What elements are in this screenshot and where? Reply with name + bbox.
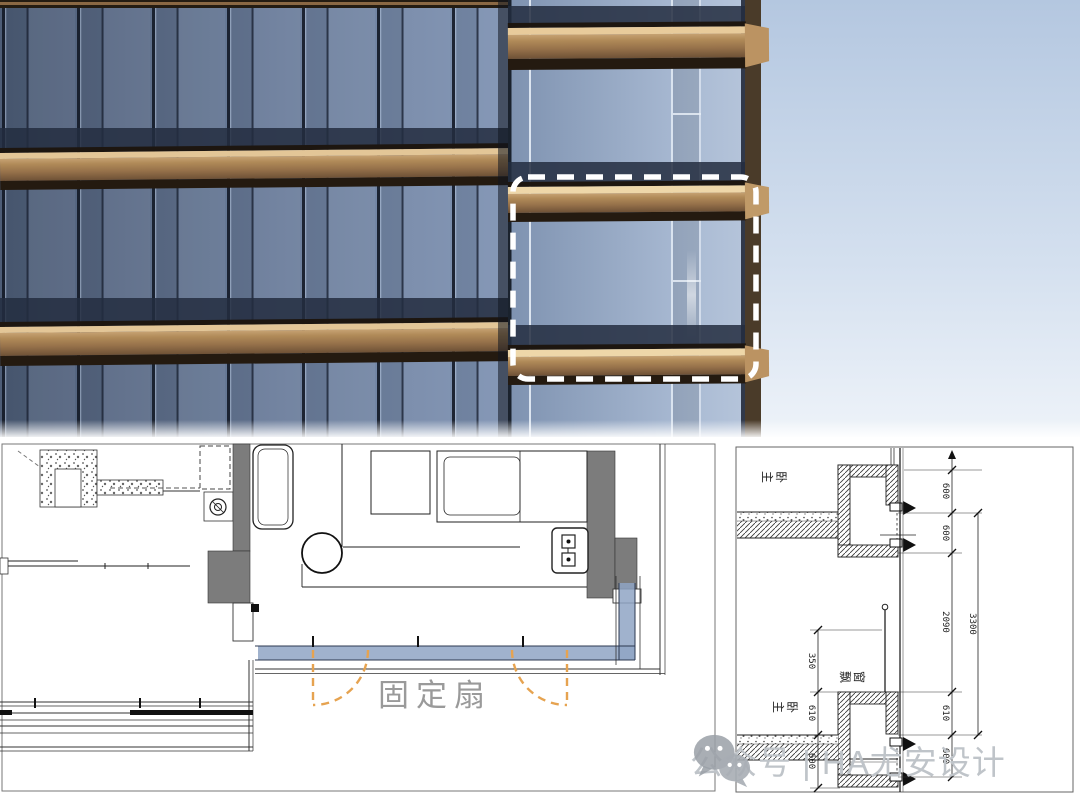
architectural-detail-composite: 固定扇	[0, 0, 1080, 807]
plan-column-circle	[302, 533, 342, 573]
bronze-band	[0, 143, 540, 190]
fixed-sash-label: 固定扇	[378, 678, 492, 713]
section-detail-drawing: 600 600 2090 610 600 3300 350 610	[730, 443, 1080, 795]
facade-render-image	[0, 0, 1080, 437]
dim-value: 350	[806, 653, 816, 669]
dim-value: 3300	[967, 613, 977, 635]
bronze-band	[0, 317, 540, 366]
dim-value: 2090	[940, 611, 950, 633]
plan-outlet-symbol	[552, 528, 588, 573]
dim-value: 610	[940, 705, 950, 721]
facade-left-block	[0, 0, 540, 437]
section-upper-slab	[737, 512, 838, 538]
dim-value: 600	[940, 525, 950, 541]
dim-value: 600	[940, 483, 950, 499]
section-lower-slab	[737, 735, 838, 760]
dim-value: 600	[940, 748, 950, 764]
dim-value: 600	[806, 753, 816, 769]
facade-protruding-bay	[508, 0, 769, 437]
dim-value: 610	[806, 705, 816, 721]
plan-detail-drawing: 固定扇	[0, 443, 718, 795]
plan-duct-dashed	[200, 446, 230, 489]
